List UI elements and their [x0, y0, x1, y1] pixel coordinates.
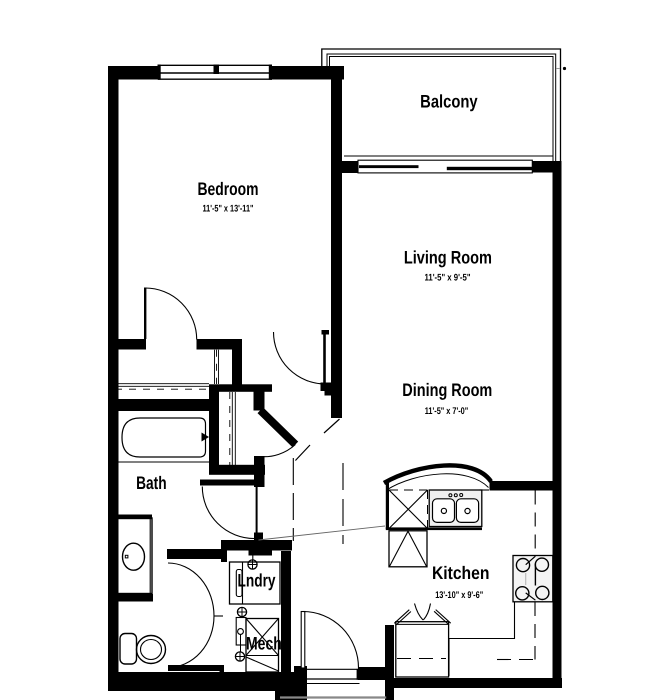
svg-text:Dining Room: Dining Room	[402, 380, 492, 400]
svg-text:Balcony: Balcony	[420, 92, 478, 112]
svg-text:Bedroom: Bedroom	[198, 179, 259, 199]
svg-text:Mech: Mech	[246, 634, 282, 654]
svg-text:11'-5" x 7'-0": 11'-5" x 7'-0"	[425, 406, 469, 417]
svg-text:Living Room: Living Room	[404, 247, 492, 267]
svg-text:11'-5" x 9'-5": 11'-5" x 9'-5"	[425, 273, 471, 284]
svg-text:Lndry: Lndry	[238, 571, 277, 591]
svg-text:13'-10" x 9'-6": 13'-10" x 9'-6"	[435, 590, 483, 601]
svg-text:11'-5" x 13'-11": 11'-5" x 13'-11"	[203, 204, 254, 215]
svg-text:Bath: Bath	[136, 473, 167, 493]
svg-text:Kitchen: Kitchen	[432, 563, 490, 583]
